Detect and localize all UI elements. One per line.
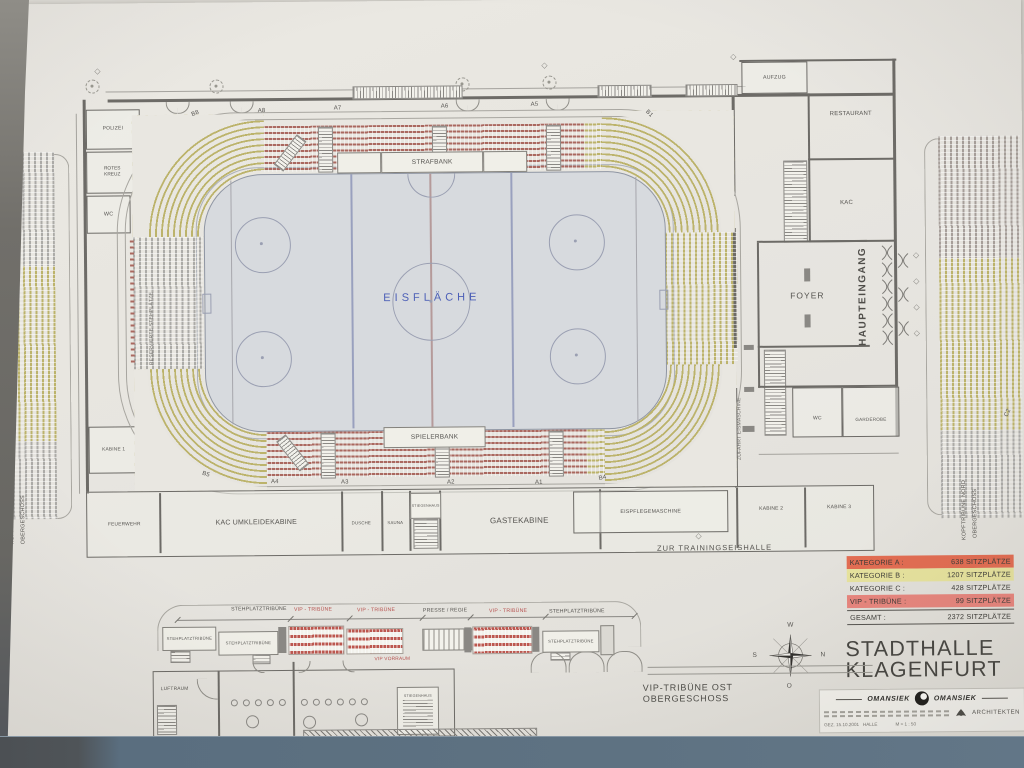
luftraum-label: LUFTRAUM [161, 687, 189, 693]
faceoff-circle [550, 328, 606, 384]
long-wall-band [648, 665, 873, 675]
bar-stool [279, 699, 286, 706]
inset-caption-line1: VIP-TRIBÜNE OST [643, 682, 733, 693]
stair-aisle [318, 127, 333, 173]
section-label-a3: A3 [341, 479, 349, 486]
photo-of-floor-plan: ◇ ◇ ◇ POLIZEI ROTES KREUZ WC KABINE 1 [0, 0, 1024, 768]
room-feuerwehr: FEUERWEHR [93, 522, 155, 528]
section-label-a4: A4 [271, 479, 279, 486]
north-tribune-label-1: KOPFTRIBÜNE NORD [961, 444, 968, 540]
legend-label: KATEGORIE A : [850, 558, 904, 567]
standing-area-west [133, 237, 204, 370]
wing-bottom-line [759, 453, 899, 455]
stair-aisle [549, 431, 564, 477]
kac-stair [783, 160, 808, 242]
inset-endcap [464, 627, 471, 652]
room-restaurant: RESTAURANT [811, 111, 891, 119]
foyer-left-wall [757, 243, 760, 388]
dim-label-vip-2: VIP - TRIBÜNE [353, 608, 399, 614]
round-table [303, 716, 316, 729]
bar-stool [231, 699, 238, 706]
room-label: STIEGENHAUS [412, 504, 440, 508]
room-gaestekabine: GASTEKABINE [449, 515, 589, 525]
entrance-diamond-icon: ◇ [913, 303, 919, 311]
restaurant-floor-wall [808, 158, 895, 161]
section-label-a2: A2 [447, 480, 455, 487]
seating-east-category-b [665, 232, 738, 365]
penalty-box-left [337, 152, 381, 173]
room-kabine-3: KABINE 3 [809, 505, 869, 511]
faceoff-dot [574, 239, 577, 242]
bar-stool [243, 699, 250, 706]
training-hall-label: ZUR TRAININGSEISHALLE [650, 544, 780, 554]
room-aufzug: AUFZUG [741, 61, 807, 94]
vip-vorraum-label: VIP VORRAUM [374, 657, 410, 663]
diamond-marker-icon: ◇ [94, 68, 100, 76]
room-label: GARDEROBE [855, 416, 886, 436]
reserved-standing-label: RESERVIERTE STEHPLÄTZE [149, 245, 156, 365]
room-stiegenhaus-main: STIEGENHAUS [410, 493, 441, 519]
rule [836, 698, 862, 699]
door-swing-icon [178, 102, 190, 114]
room-label: POLIZEI [103, 127, 124, 133]
foyer-top-wall [757, 240, 867, 243]
exterior-stairs [598, 85, 652, 97]
goal-cage [659, 290, 668, 310]
legend-label: KATEGORIE B : [850, 571, 905, 580]
section-label-a6: A6 [441, 104, 449, 111]
stair-hatch [403, 700, 433, 728]
main-entrance-label: HAUPTEINGANG [857, 244, 869, 346]
room-label: EISPFLEGEMASCHINE [620, 508, 681, 515]
room-garderobe: GARDEROBE [842, 387, 899, 437]
room-wc-right: WC [792, 387, 842, 437]
spielerbank-box: SPIELERBANK [383, 426, 485, 448]
bar-stool [325, 699, 332, 706]
bar-stool [267, 699, 274, 706]
inset-platform-1: STEHPLATZTRIBÜNE [162, 627, 216, 651]
legend-value: 99 SITZPLÄTZE [956, 596, 1011, 605]
faceoff-circle [549, 214, 605, 270]
strafbank-box: STRAFBANK [381, 151, 483, 173]
arcade-arch [606, 651, 642, 672]
legend-value: 2372 SITZPLÄTZE [947, 612, 1011, 622]
seating-bottom-category-b [587, 429, 605, 475]
hall-top-wall [108, 93, 895, 102]
tree-icon [209, 80, 223, 94]
legend-label: GESAMT : [850, 613, 886, 622]
entrance-diamond-icon: ◇ [913, 277, 919, 285]
bar-stool [361, 698, 368, 705]
section-label-a8: A8 [258, 108, 266, 115]
room-kac: KAC [827, 200, 867, 207]
south-tribune-label-2: OBERGESCHOSS [20, 456, 27, 544]
round-table [355, 713, 368, 726]
platform-label: STEHPLATZTRIBÜNE [548, 639, 594, 644]
dim-label-stehplatz-1: STEHPLATZTRIBÜNE [231, 607, 277, 613]
legend-label: KATEGORIE C : [850, 584, 905, 593]
compass-south-label: S [752, 652, 757, 660]
door-swing-icon [166, 102, 178, 114]
room-label: ROTES KREUZ [99, 167, 125, 179]
inset-platform-3: STEHPLATZTRIBÜNE [542, 630, 599, 652]
bar-stool [255, 699, 262, 706]
fine-print-block [824, 708, 950, 719]
diamond-marker-icon: ◇ [541, 62, 547, 70]
seating-top-category-b [584, 123, 602, 169]
south-tribune-edge [54, 154, 72, 519]
room-label: WC [813, 417, 822, 437]
legend-value: 428 SITZPLÄTZE [951, 583, 1011, 593]
stair-aisle [321, 433, 336, 479]
inset-stair [170, 651, 190, 663]
arrow-marker-icon: ◇ [695, 532, 701, 540]
inset-platform-2: STEHPLATZTRIBÜNE [218, 631, 278, 656]
north-tribune-rows-yellow [939, 258, 1022, 431]
dim-label-presse: PRESSE / REGIE [422, 608, 468, 614]
vip-seat-block-3 [472, 626, 532, 655]
room-kac-umkleidekabine: KAC UMKLEIDEKABINE [176, 519, 336, 528]
inset-endcap [278, 627, 286, 653]
compass-north-label: N [820, 651, 825, 659]
exterior-stairs [686, 84, 738, 96]
stair-hatch [413, 519, 438, 549]
bar-stool [301, 699, 308, 706]
dim-label-vip-3: VIP - TRIBÜNE [485, 609, 531, 615]
architect-stamp: OMANSIEK OMANSIEK ARCHITEKTEN GEZ. 15.10… [819, 688, 1024, 734]
stamp-note: GEZ. 15.10.2001 HALLE [824, 722, 877, 727]
ice-machine-access-label: ZUFAHRT EISMASCHINE [737, 380, 743, 460]
legend-label: VIP - TRIBÜNE : [850, 597, 906, 606]
eagle-crest-icon [955, 708, 967, 718]
firm-name-right: OMANSIEK [934, 694, 977, 701]
entrance-diamond-icon: ◇ [914, 329, 920, 337]
bar-stool [337, 698, 344, 705]
firm-name-left: OMANSIEK [867, 695, 910, 702]
faceoff-circle [235, 217, 291, 273]
spielerbank-label: SPIELERBANK [411, 433, 458, 441]
compass-rose-icon [762, 627, 818, 683]
platform-label: STEHPLATZTRIBÜNE [167, 636, 213, 641]
wing-stair [764, 350, 787, 436]
legend-value: 1207 SITZPLÄTZE [947, 570, 1011, 580]
faceoff-circle [236, 331, 292, 387]
vip-seat-block-1 [288, 625, 344, 654]
stamp-scale: M = 1 : 50 [895, 721, 916, 726]
platform-label: STEHPLATZTRIBÜNE [226, 641, 272, 646]
tree-icon [542, 76, 556, 90]
arcade-arch [568, 651, 604, 672]
strafbank-label: STRAFBANK [412, 158, 453, 166]
room-dusche: DUSCHE [342, 521, 380, 526]
inset-endblock [600, 625, 614, 655]
room-eispflegemaschine: EISPFLEGEMASCHINE [573, 490, 728, 533]
north-tribune-rows [941, 430, 1024, 519]
vip-seat-block-2 [346, 628, 403, 654]
bar-stool [313, 699, 320, 706]
room-foyer: FOYER [785, 291, 829, 301]
round-table [246, 715, 259, 728]
room-sauna: SAUNA [381, 521, 409, 526]
column [742, 426, 754, 432]
frame-bottom-edge [0, 736, 1024, 768]
section-label-a1: A1 [535, 480, 543, 487]
section-label-a5: A5 [531, 102, 539, 109]
penalty-box-right [483, 151, 527, 172]
compass-east-label: O [787, 683, 792, 691]
north-tribune-label-2: OBERGESCHOSS [972, 448, 979, 538]
diamond-marker-icon: ◇ [730, 53, 736, 61]
room-kabine-2: KABINE 2 [741, 506, 801, 512]
inset-ground-stair [157, 705, 177, 735]
room-label: AUFZUG [763, 75, 786, 81]
faceoff-dot [261, 356, 264, 359]
arcade-arch [530, 652, 566, 673]
room-kabine-1: KABINE 1 [88, 426, 138, 473]
north-tribune-rows [938, 136, 1021, 259]
bar-stool [349, 698, 356, 705]
column [744, 387, 754, 392]
goal-cage [202, 294, 211, 314]
room-label: STIEGENHAUS [404, 694, 432, 698]
room-label: WC [104, 211, 114, 217]
ice-surface-label: EISFLÄCHE [349, 291, 514, 305]
dim-label-stehplatz-2: STEHPLATZTRIBÜNE [549, 609, 595, 615]
firm-logo-icon [915, 691, 929, 705]
profession-label: ARCHITEKTEN [972, 709, 1020, 715]
rule [981, 697, 1007, 698]
seat-category-legend: KATEGORIE A : 638 SITZPLÄTZE KATEGORIE B… [847, 555, 1015, 625]
tree-icon [85, 80, 99, 94]
section-label-a7: A7 [334, 105, 342, 112]
column [805, 314, 811, 327]
inset-caption-line2: OBERGESCHOSS [643, 693, 729, 704]
turnstile-row-icon [879, 244, 910, 348]
legend-row-vip: VIP - TRIBÜNE : 99 SITZPLÄTZE [847, 594, 1014, 608]
column [804, 268, 810, 281]
legend-row-total: GESAMT : 2372 SITZPLÄTZE [847, 609, 1014, 625]
room-label: KABINE 1 [102, 447, 125, 453]
inset-endcap [532, 627, 539, 652]
stair-aisle [546, 125, 561, 171]
column [744, 345, 754, 350]
foyer-bottom-wall [758, 345, 870, 348]
faceoff-dot [260, 242, 263, 245]
compass-west-label: W [787, 622, 793, 630]
exterior-stairs [353, 85, 463, 99]
plan-sheet: ◇ ◇ ◇ POLIZEI ROTES KREUZ WC KABINE 1 [0, 0, 1024, 746]
faceoff-dot [575, 353, 578, 356]
dim-label-vip-1: VIP - TRIBÜNE [290, 608, 336, 614]
legend-value: 638 SITZPLÄTZE [951, 557, 1011, 567]
left-dimension-line [76, 114, 80, 494]
entrance-diamond-icon: ◇ [913, 251, 919, 259]
